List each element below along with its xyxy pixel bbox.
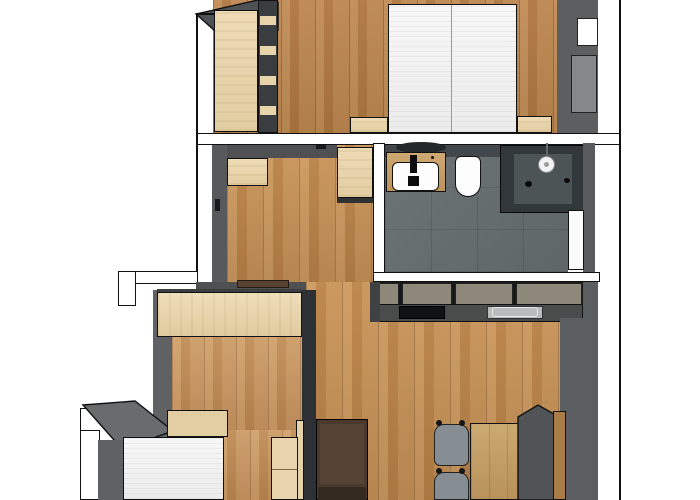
faucet: [410, 155, 417, 173]
shelf-slat-4: [260, 106, 276, 115]
kitchen-back-wall: [373, 272, 600, 282]
single-bed: [123, 437, 224, 500]
chair-1-post-right: [459, 420, 465, 426]
bench-backrest: [553, 411, 566, 500]
shelf-slat-1: [260, 16, 276, 25]
shower-head-stem: [546, 143, 548, 157]
faucet-base: [408, 176, 419, 186]
kitchen-cabinet-front-2: [402, 283, 452, 305]
plan-boundary-top-left: [196, 13, 214, 15]
hallway-cabinet-right-plinth: [337, 198, 373, 203]
shelf-slat-3: [260, 76, 276, 85]
bedroom2-lower-west-wall: [80, 430, 100, 500]
bench-seat: [518, 405, 554, 500]
east-wall-upper: [583, 282, 598, 318]
bathroom-west-wall: [373, 143, 385, 282]
floor-plan: [0, 0, 700, 500]
dining-chair-1: [434, 424, 469, 466]
single-bed-headboard: [167, 410, 228, 437]
exterior-wall-step-vertical: [118, 271, 136, 306]
plan-boundary-right: [619, 0, 621, 500]
vanity-drain-dot: [431, 156, 434, 159]
radiator: [571, 55, 597, 113]
dining-chair-2: [434, 472, 469, 500]
entry-door-handle: [215, 199, 220, 211]
cooktop: [399, 306, 445, 319]
double-bed: [388, 4, 517, 133]
hallway-cabinet-left: [227, 158, 268, 186]
shower-door-handle: [564, 178, 570, 183]
bedroom1-nightstand-right: [517, 116, 552, 133]
shower-head-center: [544, 162, 549, 167]
bedroom2-wardrobe: [157, 292, 302, 337]
dining-table: [470, 423, 522, 500]
kitchen-sink-rim: [492, 307, 538, 317]
bedroom2-lower-west-face: [98, 440, 123, 500]
bedroom1-nightstand-left: [350, 117, 388, 133]
hallway-cabinet-right: [337, 147, 373, 198]
chair-2-post-left: [436, 468, 442, 474]
kitchen-side-panel: [370, 282, 380, 322]
bedroom2-nightstand-seam: [272, 469, 297, 470]
window-niche: [577, 18, 598, 46]
bathroom-east-wall: [583, 143, 595, 282]
bedroom1-wardrobe: [214, 10, 258, 132]
kitchen-cabinet-front-3: [455, 283, 513, 305]
bathroom-door: [568, 210, 584, 270]
plan-boundary-left: [196, 13, 198, 272]
sofa-seat: [318, 487, 366, 500]
shower-control-knob: [525, 181, 532, 187]
bedroom1-door-handle: [316, 145, 326, 149]
hallway-west-wall: [212, 145, 227, 290]
toilet: [455, 156, 481, 197]
bedroom2-east-wall: [302, 290, 316, 500]
chair-2-post-right: [459, 468, 465, 474]
sofa-back-cushion: [320, 424, 364, 484]
shelf-slat-2: [260, 46, 276, 55]
double-bed-center-seam: [451, 5, 452, 132]
kitchen-cabinet-front-4: [516, 283, 582, 305]
chair-1-post-left: [436, 420, 442, 426]
bedroom2-door-lintel: [237, 280, 289, 288]
